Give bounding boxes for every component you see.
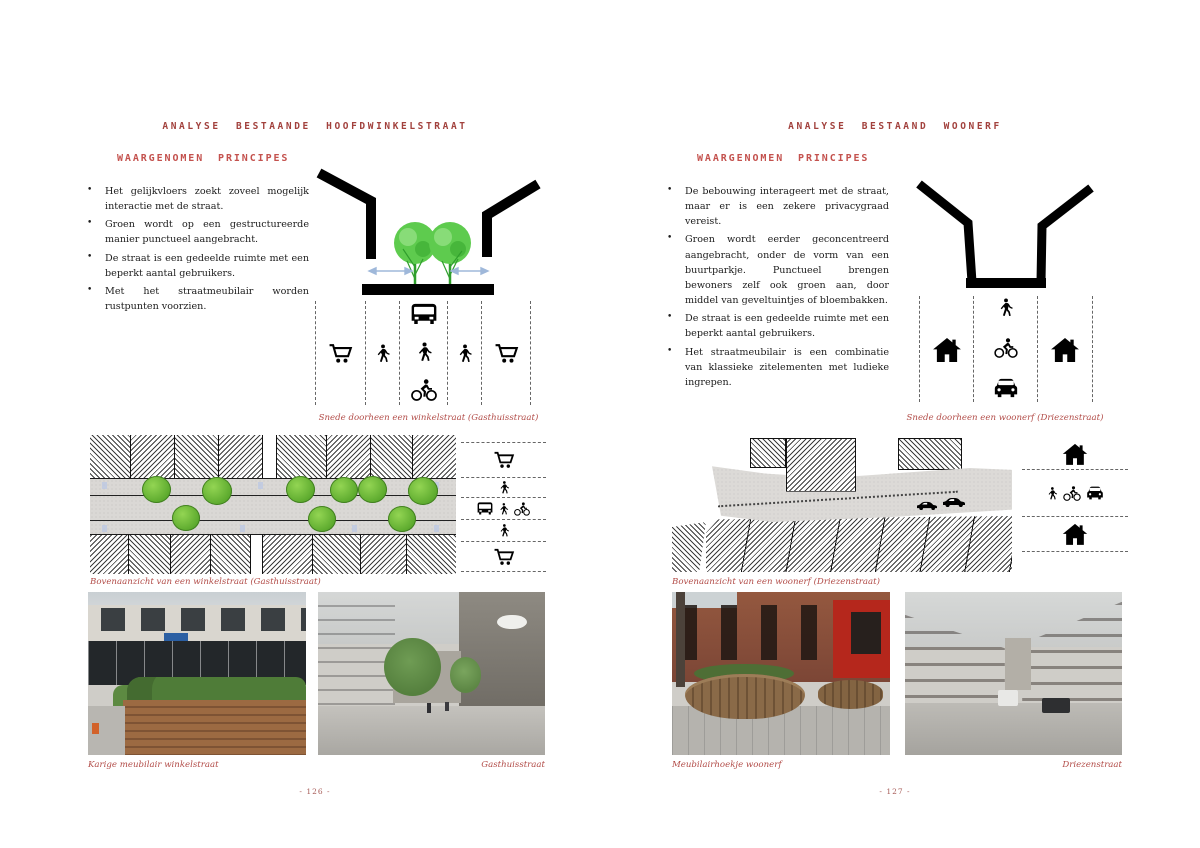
- legend-row-pedestrian: [461, 478, 546, 498]
- lane-shops: [315, 301, 365, 405]
- bullet-item: Groen wordt eerder geconcentreerd aangeb…: [665, 232, 889, 308]
- photo-round-planter: [685, 674, 805, 720]
- photo-orange-object: [92, 723, 99, 734]
- photo-gasthuisstraat: [318, 592, 545, 755]
- right-plan-legend: [1022, 438, 1128, 572]
- left-principles-list: Het gelijkvloers zoekt zoveel mogelijk i…: [85, 184, 309, 317]
- car-icon: [993, 378, 1019, 398]
- bullet-item: De straat is een gedeelde ruimte met een…: [85, 251, 309, 281]
- hatch-parcel: [786, 438, 856, 492]
- tree-canopy: [330, 477, 358, 503]
- lane-shared: [973, 296, 1037, 402]
- building-band: [90, 535, 456, 574]
- right-principles-list: De bebouwing interageert met de straat, …: [665, 184, 889, 393]
- ground-slab: [966, 278, 1046, 288]
- cart-icon: [493, 548, 515, 566]
- hatch-parcel: [170, 535, 210, 574]
- legend-row-pedestrian: [461, 520, 546, 542]
- hatch-block-southwest: [672, 522, 706, 572]
- lane-pedestrian: [365, 301, 399, 405]
- photo-right-buildings: [459, 592, 545, 713]
- photo-person: [427, 703, 431, 713]
- furniture-mark: [102, 482, 107, 489]
- cyclist-icon: [994, 338, 1018, 358]
- furniture-mark: [352, 525, 357, 532]
- tree-canopy: [286, 476, 315, 503]
- hatch-parcel: [360, 535, 406, 574]
- photo-dark-car: [1042, 698, 1070, 713]
- hatch-parcel: [370, 435, 412, 478]
- street-section-drawing: [312, 167, 545, 300]
- tree-canopy: [142, 476, 171, 503]
- photo-dark-opening: [851, 612, 882, 654]
- building-walls: [919, 184, 1091, 282]
- car-icon: [916, 500, 938, 510]
- house-icon: [1062, 443, 1088, 465]
- right-plan-caption: Bovenaanzicht van een woonerf (Driezenst…: [672, 577, 880, 587]
- photo-driezenstraat: [905, 592, 1122, 755]
- photo-windows: [681, 605, 825, 660]
- hatch-parcel: [262, 535, 312, 574]
- right-plan-diagram: [672, 438, 1012, 572]
- photo-street-surface: [905, 703, 1122, 755]
- hatch-block-south: [706, 516, 1012, 572]
- interaction-arrow: [369, 268, 488, 274]
- photo-winkelstraat-meubilair: [88, 592, 306, 755]
- pedestrian-icon: [498, 481, 510, 494]
- hatch-parcel: [218, 435, 262, 478]
- lane-houses: [1037, 296, 1093, 402]
- photo-tree: [384, 638, 441, 697]
- street-tree: [429, 222, 471, 284]
- cyclist-icon: [514, 502, 530, 516]
- tree-canopy: [172, 505, 200, 531]
- lane-pedestrian: [447, 301, 481, 405]
- cyclist-icon: [411, 379, 437, 401]
- bus-icon: [411, 303, 437, 325]
- building-band: [90, 435, 456, 478]
- pedestrian-icon: [1046, 487, 1058, 500]
- tree-canopy: [388, 506, 416, 532]
- hatch-parcel: [312, 535, 360, 574]
- street-tree: [394, 222, 436, 284]
- furniture-mark: [434, 525, 439, 532]
- photo-left-buildings: [318, 605, 395, 709]
- cart-icon: [328, 343, 353, 364]
- right-photo1-caption: Meubilairhoekje woonerf: [672, 760, 890, 770]
- hatch-parcel: [90, 435, 130, 478]
- photo-woonerf-meubilair: [672, 592, 890, 755]
- hatch-parcel: [174, 435, 218, 478]
- lane-shared: [399, 301, 447, 405]
- pedestrian-icon: [415, 342, 433, 362]
- lane-strip: [919, 296, 1093, 402]
- photo-street-sign: [164, 633, 188, 641]
- side-street-gap: [262, 435, 276, 478]
- pedestrian-icon: [997, 298, 1014, 317]
- house-icon: [1050, 337, 1080, 362]
- furniture-mark: [102, 525, 107, 532]
- legend-row-shops: [461, 442, 546, 478]
- bullet-item: Groen wordt op een gestructureerde manie…: [85, 217, 309, 247]
- right-page-title: ANALYSE BESTAAND WOONERF: [665, 121, 1125, 132]
- left-page-title: ANALYSE BESTAANDE HOOFDWINKELSTRAAT: [85, 121, 545, 132]
- legend-row-shared: [1022, 470, 1128, 517]
- pedestrian-icon: [374, 344, 391, 363]
- legend-row-shared: [461, 498, 546, 520]
- side-street-gap: [250, 535, 262, 574]
- hatch-parcel: [276, 435, 326, 478]
- furniture-mark: [258, 482, 263, 489]
- pedestrian-icon: [498, 503, 509, 515]
- pedestrian-icon: [498, 524, 510, 537]
- left-section-diagram: [312, 167, 545, 407]
- left-principles-heading: WAARGENOMEN PRINCIPES: [117, 153, 289, 164]
- photo-tree-trunk: [676, 592, 685, 687]
- photo-person: [445, 702, 449, 711]
- hatch-parcel: [130, 435, 174, 478]
- left-plan-caption: Bovenaanzicht van een winkelstraat (Gast…: [90, 577, 321, 587]
- right-principles-heading: WAARGENOMEN PRINCIPES: [697, 153, 869, 164]
- left-section-caption: Snede doorheen een winkelstraat (Gasthui…: [312, 413, 545, 423]
- left-plan-legend: [461, 435, 546, 574]
- tree-canopy: [408, 477, 438, 505]
- bus-icon: [477, 502, 493, 515]
- hatch-parcel: [750, 438, 786, 468]
- left-photo2-caption: Gasthuisstraat: [318, 760, 545, 770]
- photo-upper-windows: [101, 608, 306, 631]
- bullet-item: De straat is een gedeelde ruimte met een…: [665, 311, 889, 341]
- tree-canopy: [202, 477, 232, 505]
- right-section-diagram: [905, 178, 1105, 404]
- hatch-parcel: [898, 438, 962, 470]
- street-section-drawing: [905, 178, 1105, 294]
- legend-row-shops: [461, 542, 546, 572]
- photo-street-surface: [318, 706, 545, 755]
- cyclist-icon: [1063, 486, 1081, 501]
- house-icon: [1062, 523, 1088, 545]
- legend-row-houses: [1022, 517, 1128, 552]
- hatch-parcel: [90, 535, 128, 574]
- cart-icon: [493, 451, 515, 469]
- photo-wooden-planter: [123, 700, 306, 755]
- bullet-item: Het straatmeubilair is een combinatie va…: [665, 345, 889, 390]
- bullet-item: Het gelijkvloers zoekt zoveel mogelijk i…: [85, 184, 309, 214]
- left-page-number: - 126 -: [85, 787, 545, 796]
- pedestrian-icon: [456, 344, 473, 363]
- car-icon: [942, 496, 966, 507]
- left-plan-diagram: [90, 435, 456, 574]
- lane-strip: [315, 301, 541, 405]
- bullet-item: Met het straatmeubilair worden rustpunte…: [85, 284, 309, 314]
- tree-canopy: [308, 506, 336, 532]
- cart-icon: [494, 343, 519, 364]
- house-icon: [932, 337, 962, 362]
- hatch-parcel: [128, 535, 170, 574]
- hatch-parcel: [210, 535, 250, 574]
- photo-round-planter: [818, 680, 883, 709]
- left-photo1-caption: Karige meubilair winkelstraat: [88, 760, 306, 770]
- car-icon: [1086, 486, 1104, 500]
- photo-far-buildings: [1005, 638, 1031, 690]
- book-spread: ANALYSE BESTAANDE HOOFDWINKELSTRAAT WAAR…: [0, 0, 1200, 848]
- bullet-item: De bebouwing interageert met de straat, …: [665, 184, 889, 229]
- furniture-mark: [240, 525, 245, 532]
- street-band: [90, 478, 456, 535]
- legend-row-houses: [1022, 438, 1128, 470]
- photo-white-van: [998, 690, 1018, 706]
- right-photo2-caption: Driezenstraat: [905, 760, 1122, 770]
- hatch-parcel: [412, 435, 456, 478]
- lane-shops: [481, 301, 531, 405]
- right-section-caption: Snede doorheen een woonerf (Driezenstraa…: [905, 413, 1105, 423]
- hatch-parcel: [326, 435, 370, 478]
- woonerf-street: [712, 460, 1012, 522]
- hatch-parcel: [406, 535, 456, 574]
- ground-slab: [362, 284, 494, 295]
- right-page-number: - 127 -: [665, 787, 1125, 796]
- lane-houses: [919, 296, 973, 402]
- tree-canopy: [358, 476, 387, 503]
